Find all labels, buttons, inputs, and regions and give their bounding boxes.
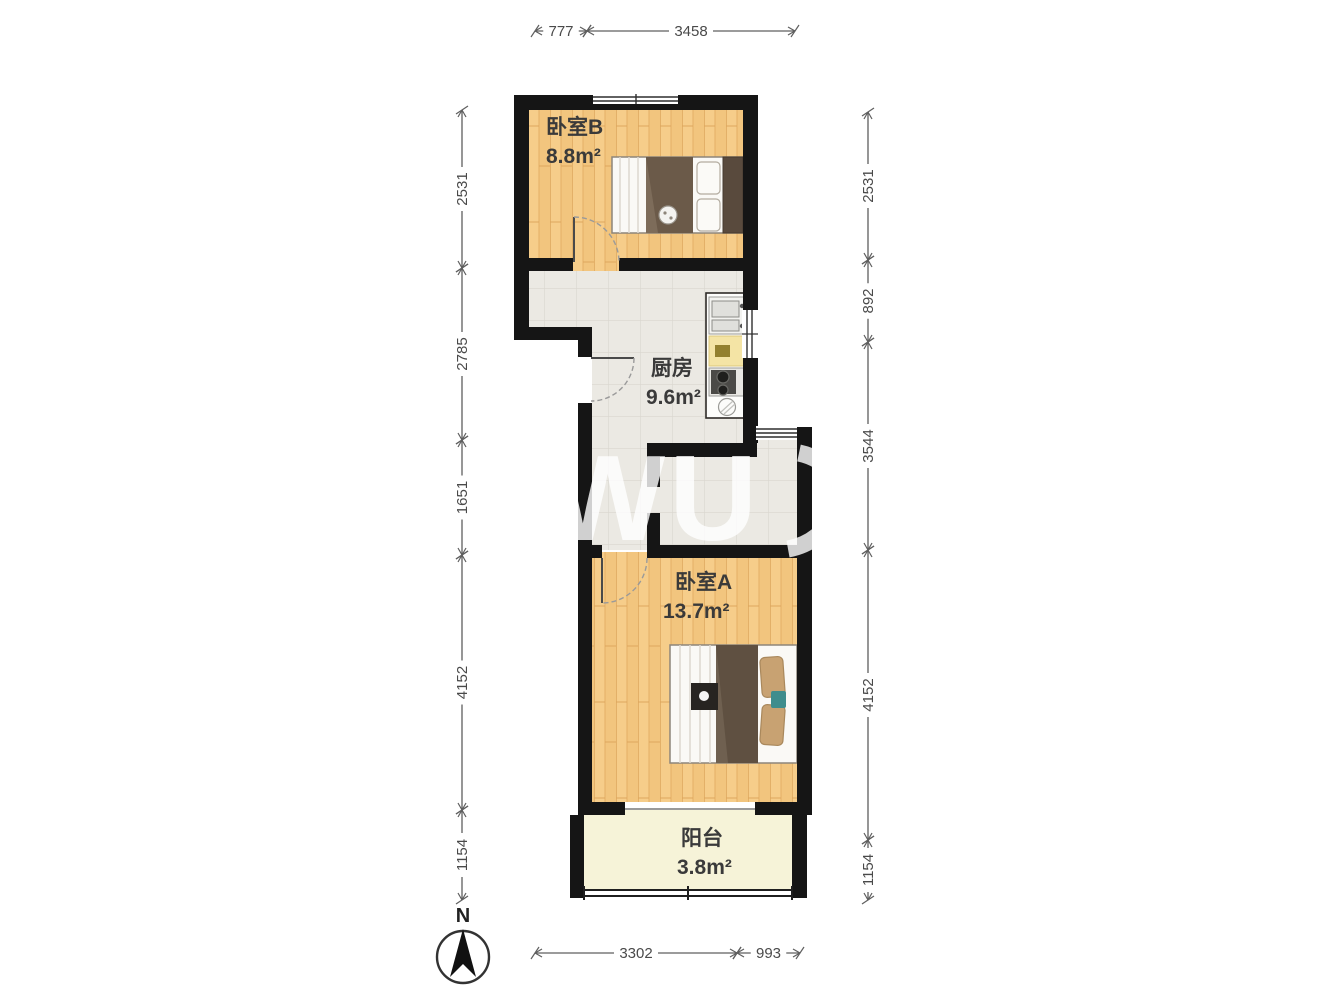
- pillow-icon: [697, 162, 720, 194]
- dimension-segment: 4152: [859, 546, 877, 844]
- headboard: [723, 157, 743, 233]
- dimension-segment: 993: [733, 944, 804, 962]
- burner: [718, 385, 728, 395]
- bedroom-b-bed: [612, 157, 743, 233]
- svg-text:2531: 2531: [860, 169, 877, 202]
- window-icon: [742, 310, 758, 358]
- svg-text:993: 993: [756, 945, 781, 962]
- wall: [514, 95, 529, 340]
- kitchen-counter: [706, 293, 748, 418]
- room-name-bedroom-b: 卧室B: [546, 115, 603, 139]
- wall: [743, 95, 758, 312]
- floor-plan-page: 卧室B 8.8m² 厨房 9.6m² 卧室A 13.7m² 阳台 3.8m² N…: [0, 0, 1333, 1000]
- dimension-chain-bottom: 3302993: [531, 944, 804, 962]
- dimension-segment: 2531: [859, 108, 877, 264]
- window-icon: [756, 426, 797, 440]
- dimension-segment: 3302: [531, 944, 741, 962]
- dimension-chain-top: 7773458: [531, 22, 799, 40]
- watermark-text: WU: [550, 430, 761, 566]
- bed-accessory-icon: [659, 206, 677, 224]
- wall: [797, 427, 812, 815]
- counter-item: [715, 345, 730, 357]
- compass-label: N: [456, 905, 470, 927]
- wall: [578, 802, 625, 815]
- room-name-balcony: 阳台: [681, 826, 723, 850]
- room-area-balcony: 3.8m²: [677, 856, 732, 879]
- wall: [755, 802, 812, 815]
- room-name-bedroom-a: 卧室A: [675, 570, 732, 594]
- wall: [578, 340, 592, 357]
- wall: [570, 815, 584, 898]
- dimension-segment: 2531: [453, 106, 471, 272]
- north-arrow-icon: N: [437, 905, 489, 983]
- dimension-segment: 1154: [453, 806, 471, 904]
- svg-text:1154: 1154: [860, 854, 877, 886]
- wall: [514, 258, 573, 271]
- dimension-segment: 777: [531, 22, 591, 40]
- svg-text:1154: 1154: [454, 839, 471, 871]
- dimension-segment: 3544: [859, 338, 877, 554]
- floor-plan: 卧室B 8.8m² 厨房 9.6m² 卧室A 13.7m² 阳台 3.8m² N…: [0, 0, 1333, 1000]
- svg-text:4152: 4152: [860, 678, 877, 711]
- dimension-segment: 4152: [453, 551, 471, 814]
- dimension-segment: 3458: [583, 22, 799, 40]
- svg-text:2531: 2531: [454, 172, 471, 205]
- svg-text:2785: 2785: [454, 337, 471, 370]
- window-icon: [593, 94, 678, 110]
- burner: [717, 371, 729, 383]
- svg-text:777: 777: [548, 23, 573, 40]
- svg-text:892: 892: [860, 288, 877, 313]
- svg-text:1651: 1651: [454, 481, 471, 514]
- lamp-icon: [699, 691, 709, 701]
- dimension-chain-right: 2531892354441521154: [859, 108, 877, 904]
- pillow-icon: [760, 704, 786, 746]
- wall: [514, 327, 592, 340]
- room-area-kitchen: 9.6m²: [646, 386, 701, 409]
- svg-text:4152: 4152: [454, 666, 471, 699]
- dimension-segment: 2785: [453, 264, 471, 444]
- dimension-segment: 1154: [859, 836, 877, 904]
- svg-text:3458: 3458: [674, 23, 707, 40]
- pillow-icon: [697, 199, 720, 231]
- room-area-bedroom-b: 8.8m²: [546, 145, 601, 168]
- room-name-kitchen: 厨房: [651, 356, 693, 380]
- cushion-icon: [771, 691, 786, 708]
- dimension-segment: 892: [859, 256, 877, 346]
- bedroom-a-bed: [670, 645, 797, 763]
- room-area-bedroom-a: 13.7m²: [663, 600, 730, 623]
- svg-text:3544: 3544: [860, 429, 877, 462]
- dimension-chain-left: 25312785165141521154: [453, 106, 471, 904]
- wall: [619, 258, 757, 271]
- svg-text:3302: 3302: [619, 945, 652, 962]
- dimension-segment: 1651: [453, 436, 471, 559]
- wall: [792, 815, 807, 898]
